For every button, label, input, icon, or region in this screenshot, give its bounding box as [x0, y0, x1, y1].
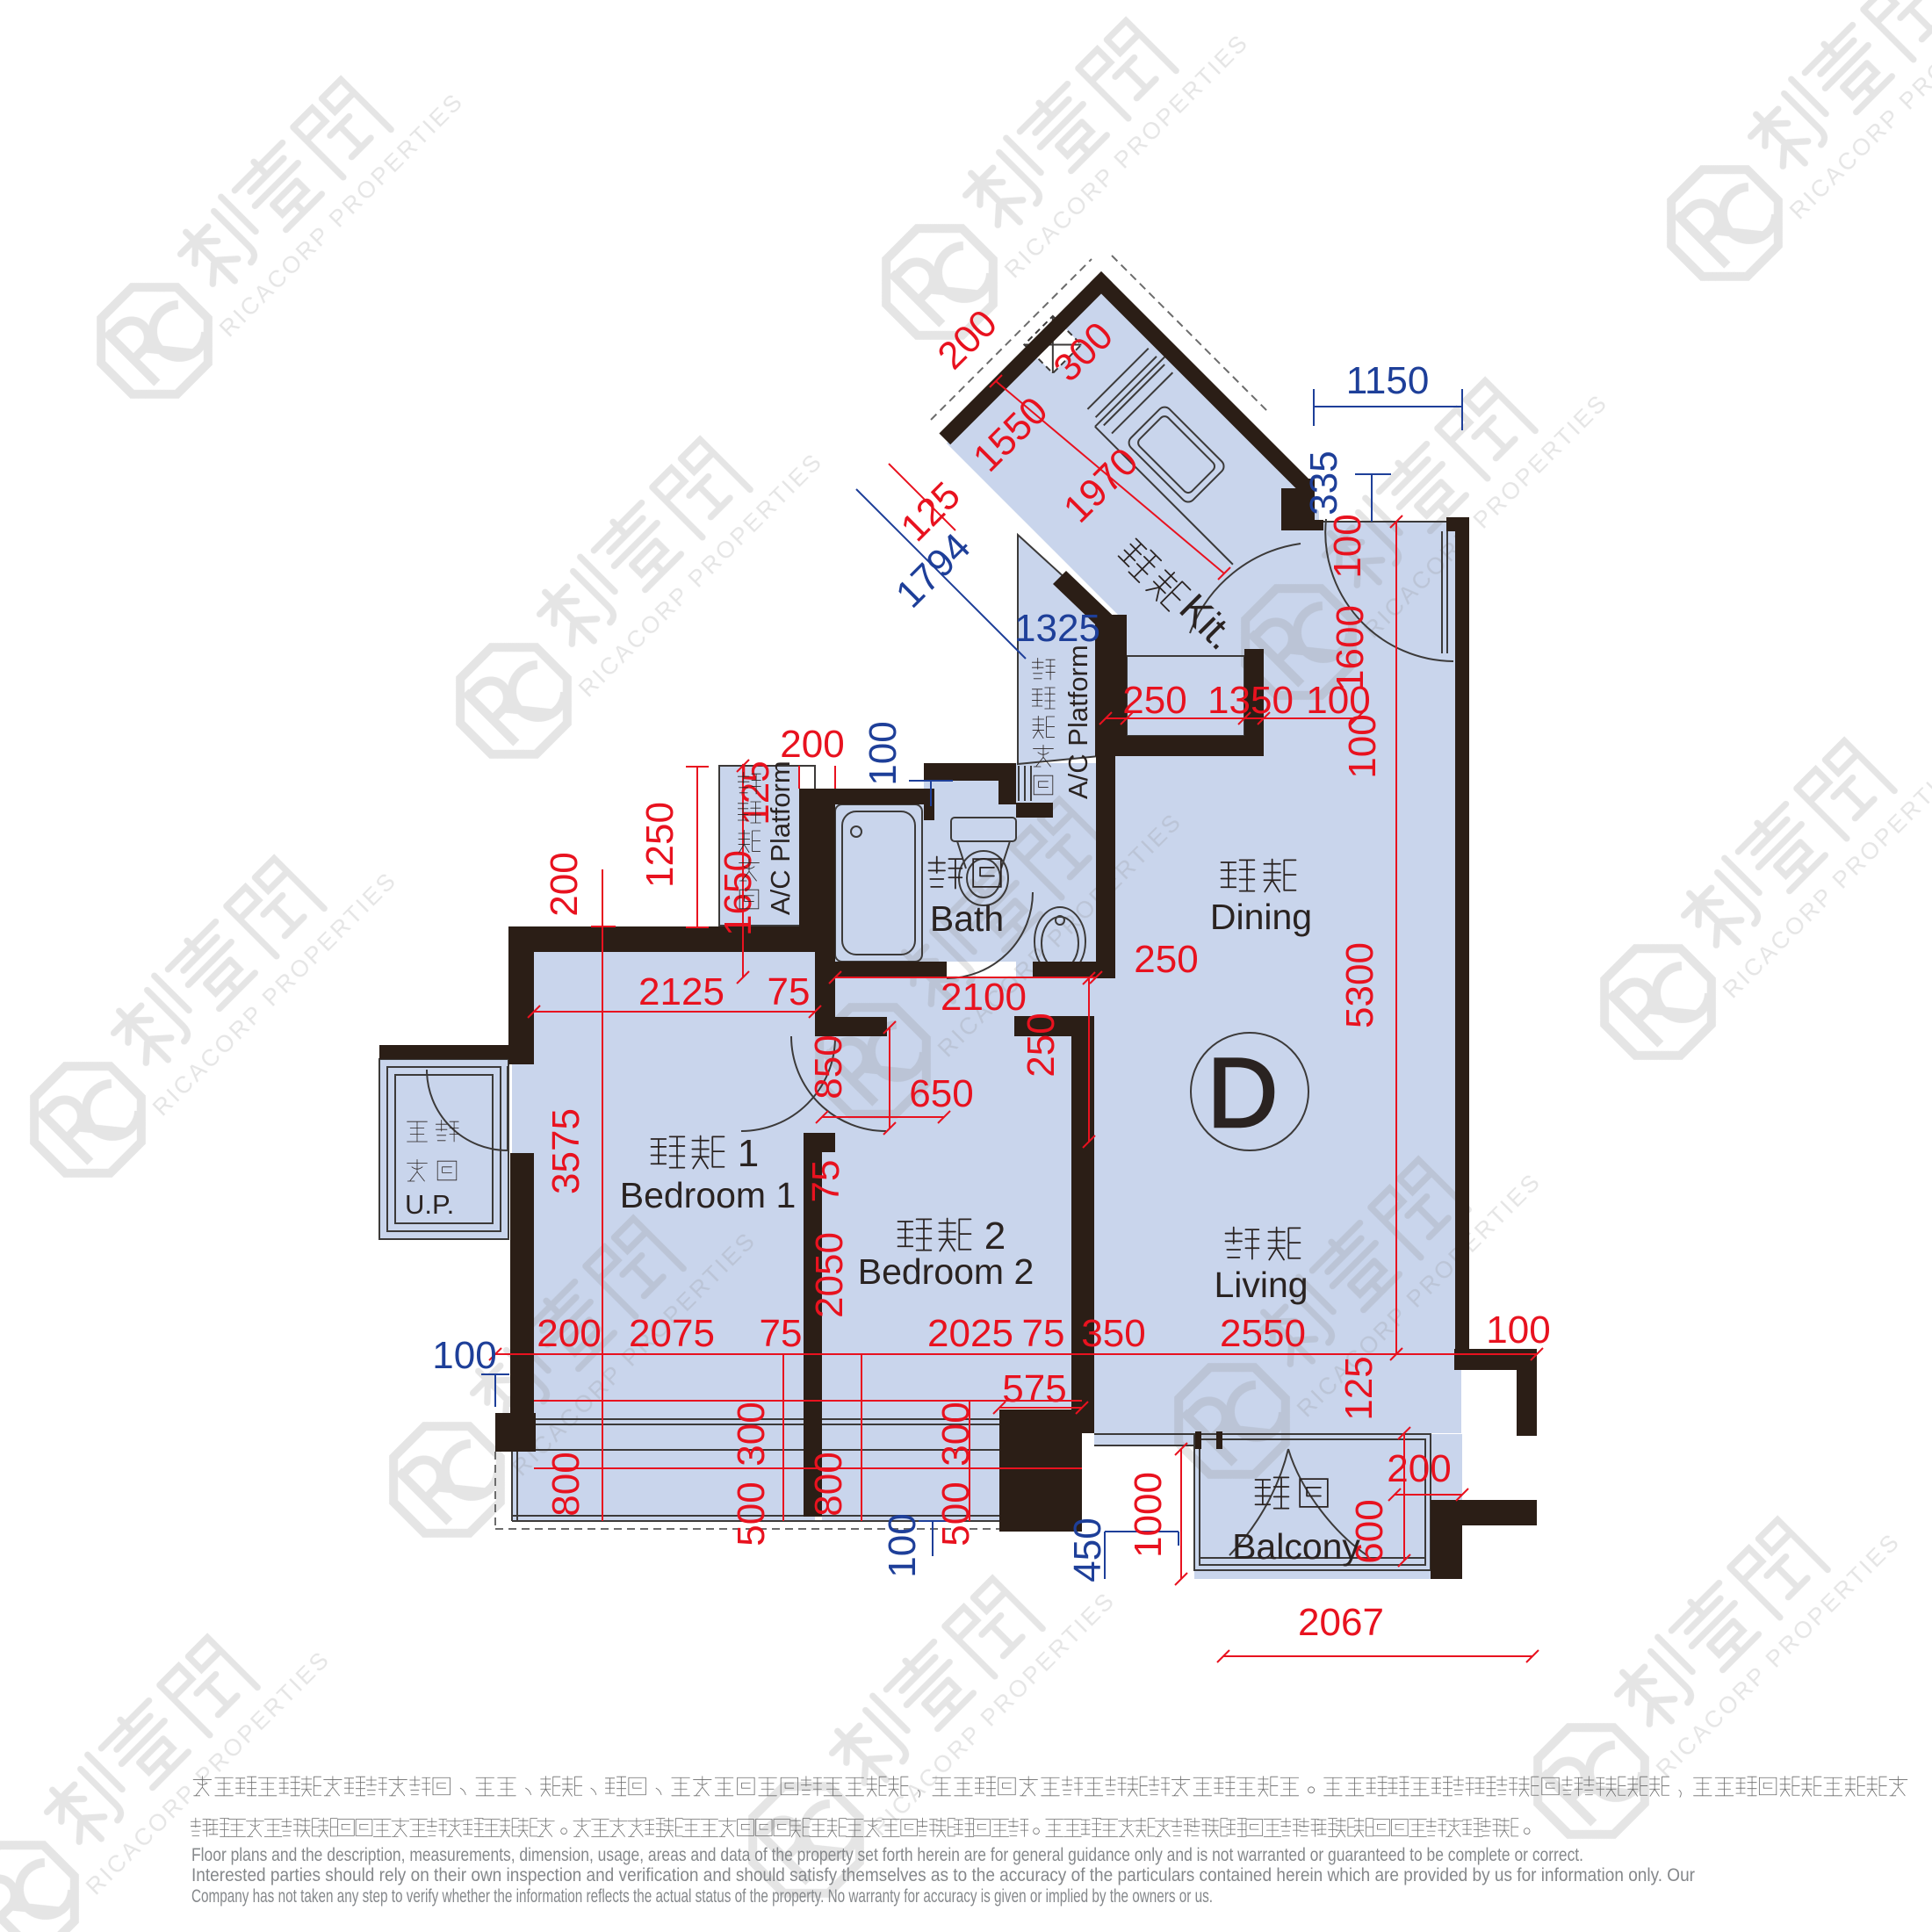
svg-text:250: 250	[1122, 679, 1186, 722]
svg-text:800: 800	[544, 1452, 588, 1516]
svg-text:200: 200	[537, 1312, 601, 1355]
svg-text:100: 100	[881, 1513, 924, 1577]
svg-text:1000: 1000	[1127, 1472, 1170, 1558]
svg-text:2025: 2025	[927, 1312, 1013, 1355]
svg-text:2050: 2050	[808, 1232, 851, 1318]
svg-text:2125: 2125	[638, 970, 724, 1013]
svg-text:Balcony: Balcony	[1232, 1526, 1360, 1567]
svg-text:A/C Platform: A/C Platform	[1063, 645, 1093, 799]
svg-text:Company has not taken any step: Company has not taken any step to verify…	[191, 1885, 1213, 1907]
svg-text:1325: 1325	[1014, 607, 1100, 650]
svg-text:U.P.: U.P.	[405, 1189, 454, 1220]
svg-text:335: 335	[1302, 451, 1345, 515]
svg-text:500: 500	[730, 1481, 773, 1546]
svg-text:5300: 5300	[1338, 942, 1381, 1028]
svg-text:75: 75	[768, 970, 811, 1013]
svg-text:350: 350	[1081, 1312, 1145, 1355]
svg-text:200: 200	[780, 723, 844, 766]
svg-text:Interested parties should rely: Interested parties should rely on their …	[191, 1864, 1695, 1885]
svg-text:300: 300	[934, 1402, 977, 1466]
svg-text:Bath: Bath	[930, 898, 1004, 939]
svg-text:3575: 3575	[544, 1108, 588, 1194]
svg-text:300: 300	[730, 1402, 773, 1466]
svg-text:650: 650	[909, 1072, 973, 1115]
svg-text:500: 500	[934, 1481, 977, 1546]
svg-text:75: 75	[760, 1312, 803, 1355]
svg-text:200: 200	[1387, 1447, 1451, 1490]
svg-text:Bedroom 1: Bedroom 1	[620, 1175, 797, 1215]
svg-text:Bedroom 2: Bedroom 2	[858, 1251, 1034, 1292]
svg-text:2075: 2075	[629, 1312, 715, 1355]
svg-text:75: 75	[804, 1160, 847, 1203]
svg-text:2100: 2100	[941, 976, 1027, 1019]
svg-text:1350: 1350	[1207, 679, 1294, 722]
svg-text:D: D	[1207, 1038, 1279, 1148]
svg-text:100: 100	[1486, 1308, 1550, 1352]
svg-text:1600: 1600	[1329, 605, 1372, 691]
svg-text:A/C Platform: A/C Platform	[765, 761, 796, 915]
svg-text:575: 575	[1002, 1367, 1066, 1410]
svg-text:125: 125	[1337, 1356, 1381, 1420]
svg-text:100: 100	[432, 1334, 496, 1377]
svg-text:1150: 1150	[1346, 359, 1430, 402]
svg-text:2550: 2550	[1220, 1312, 1306, 1355]
svg-text:Floor plans and the descriptio: Floor plans and the description, measure…	[191, 1844, 1583, 1865]
svg-text:450: 450	[1066, 1517, 1109, 1582]
svg-text:2067: 2067	[1298, 1601, 1384, 1644]
svg-text:1250: 1250	[638, 802, 681, 888]
svg-text:Living: Living	[1214, 1265, 1308, 1305]
svg-text:100: 100	[1326, 514, 1369, 578]
svg-text:250: 250	[1020, 1013, 1063, 1077]
svg-text:800: 800	[807, 1452, 850, 1516]
svg-text:100: 100	[1341, 714, 1384, 778]
svg-text:200: 200	[543, 852, 586, 916]
svg-text:1: 1	[738, 1132, 759, 1175]
svg-text:100: 100	[861, 721, 905, 785]
svg-text:250: 250	[1134, 938, 1198, 981]
svg-text:Dining: Dining	[1210, 897, 1312, 937]
svg-text:75: 75	[1022, 1312, 1065, 1355]
svg-text:850: 850	[807, 1034, 850, 1099]
